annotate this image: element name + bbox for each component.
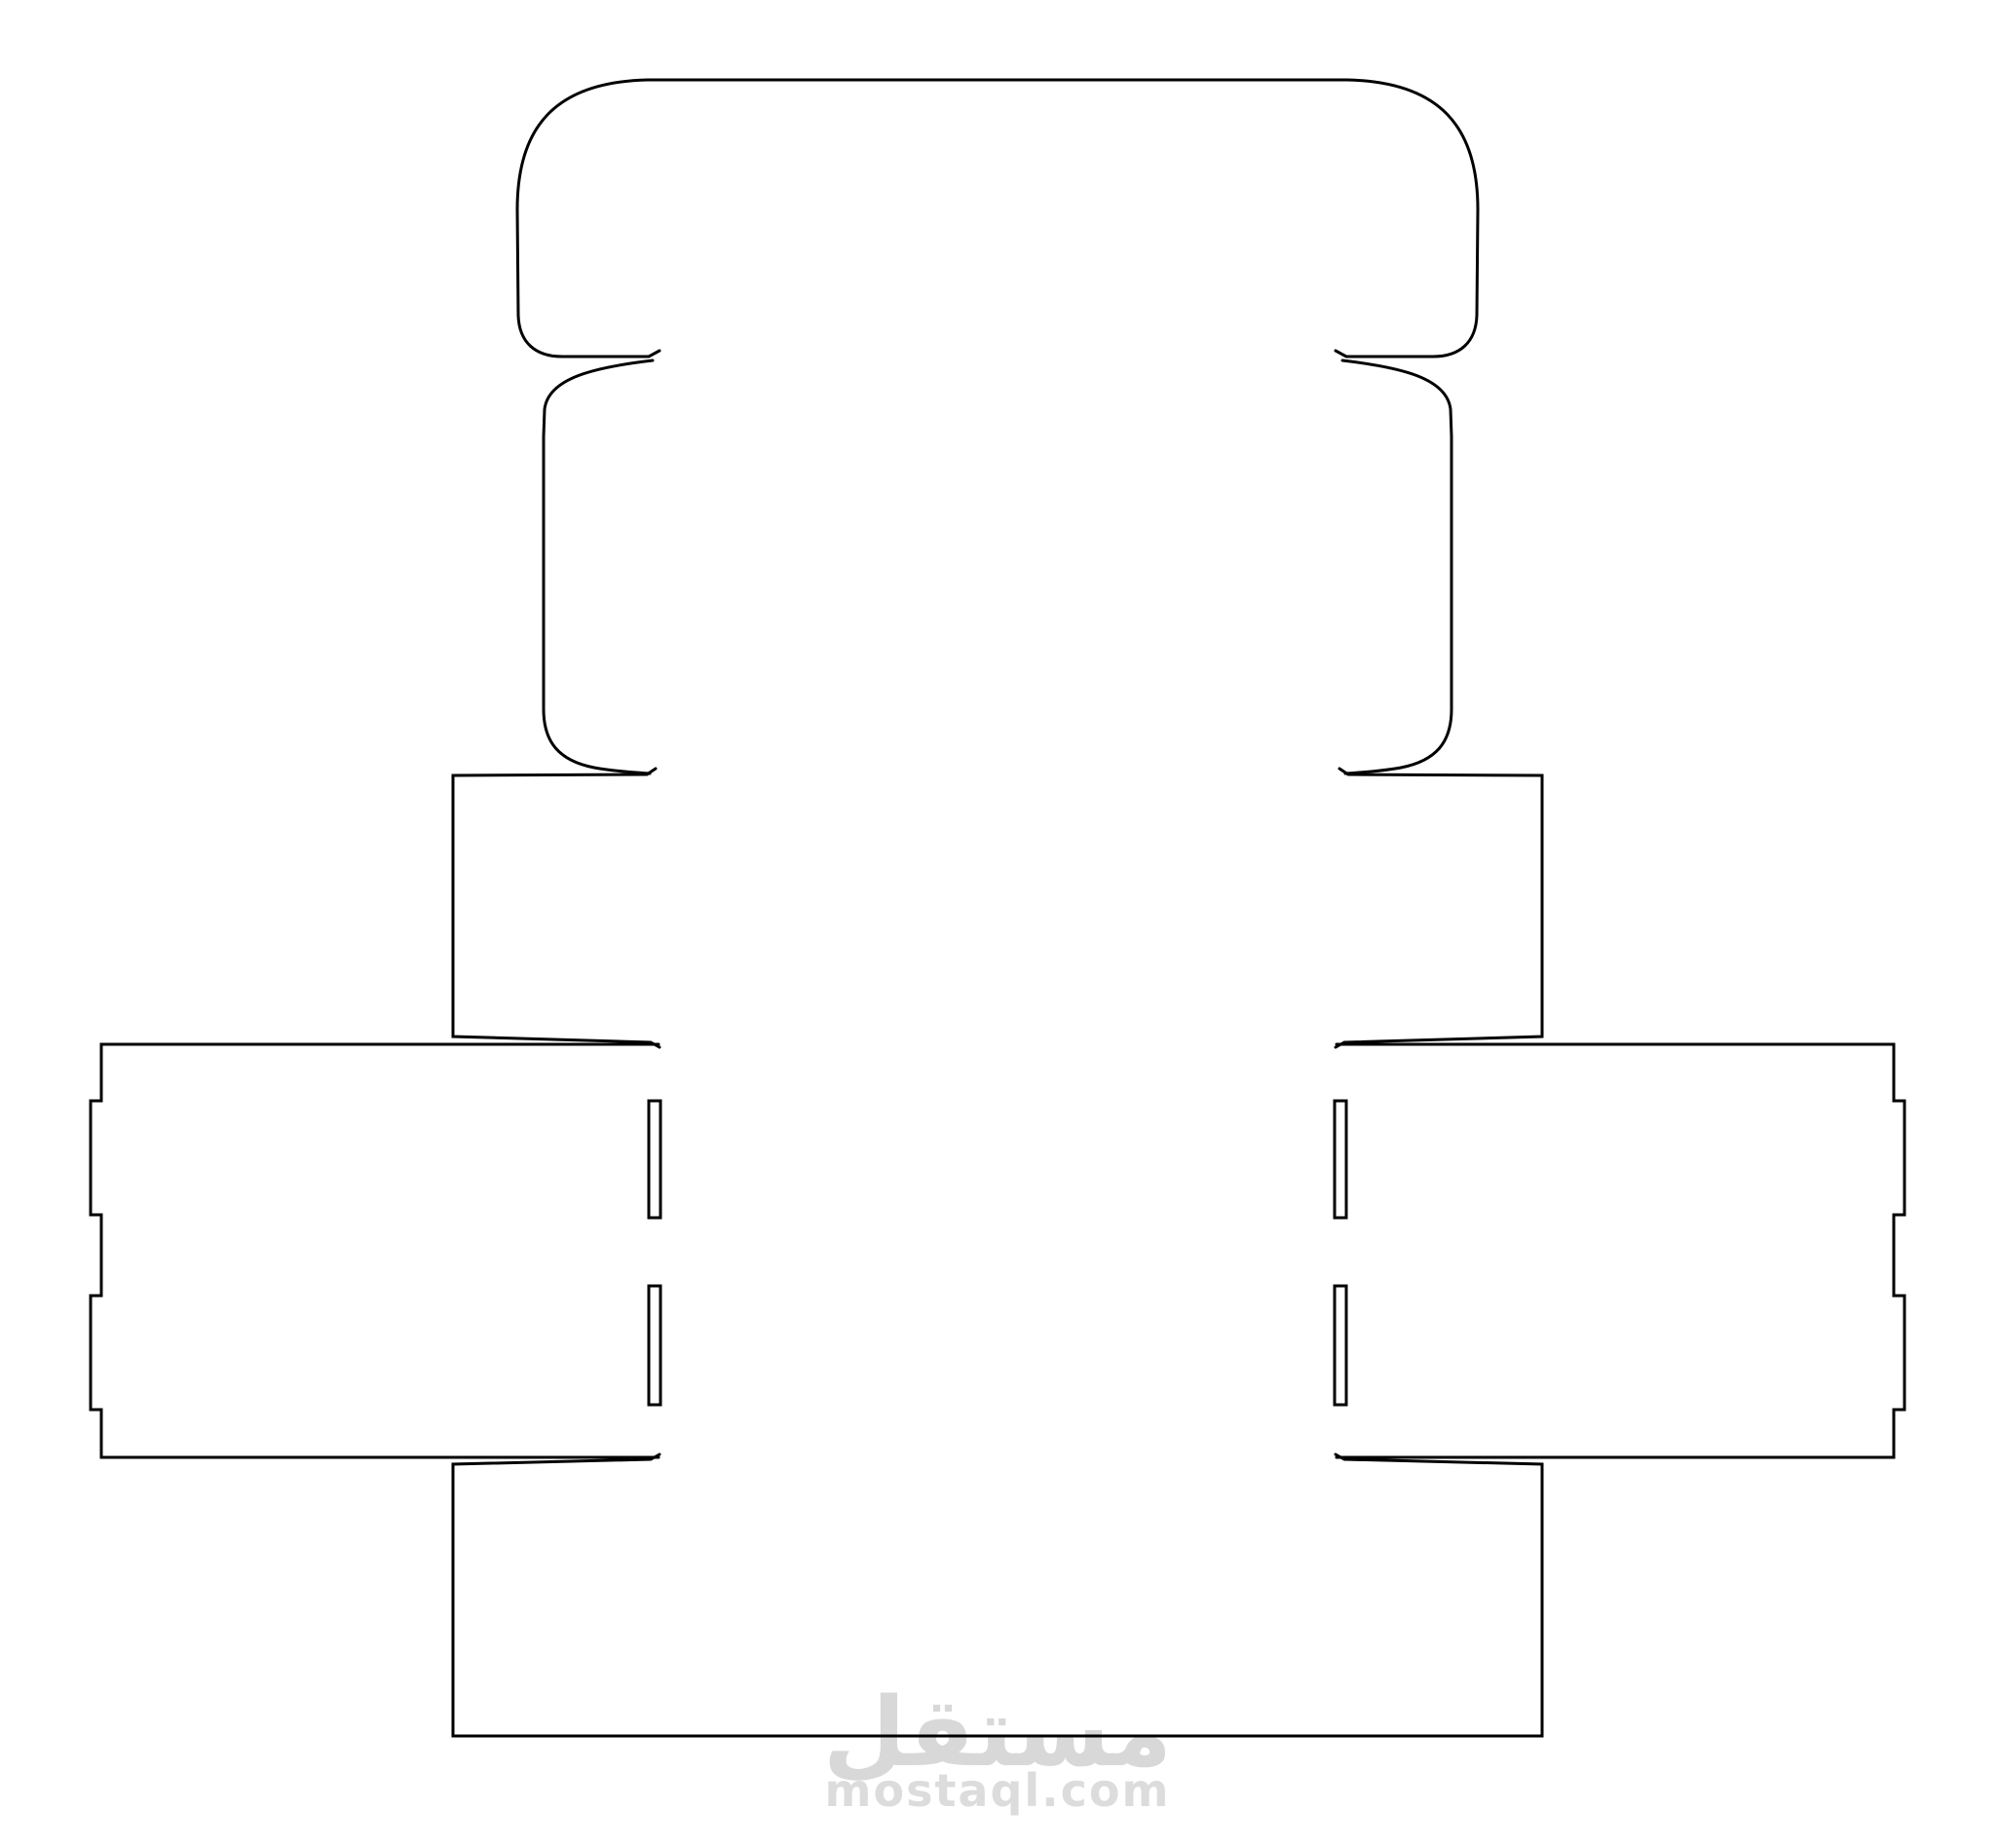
watermark-site-text: mostaql.com [825, 1764, 1171, 1817]
dieline-page: مستقل mostaql.com [0, 0, 1998, 1848]
dieline-canvas: مستقل mostaql.com [0, 0, 1998, 1848]
page-background [0, 0, 1998, 1848]
watermark: مستقل mostaql.com [823, 1678, 1172, 1817]
